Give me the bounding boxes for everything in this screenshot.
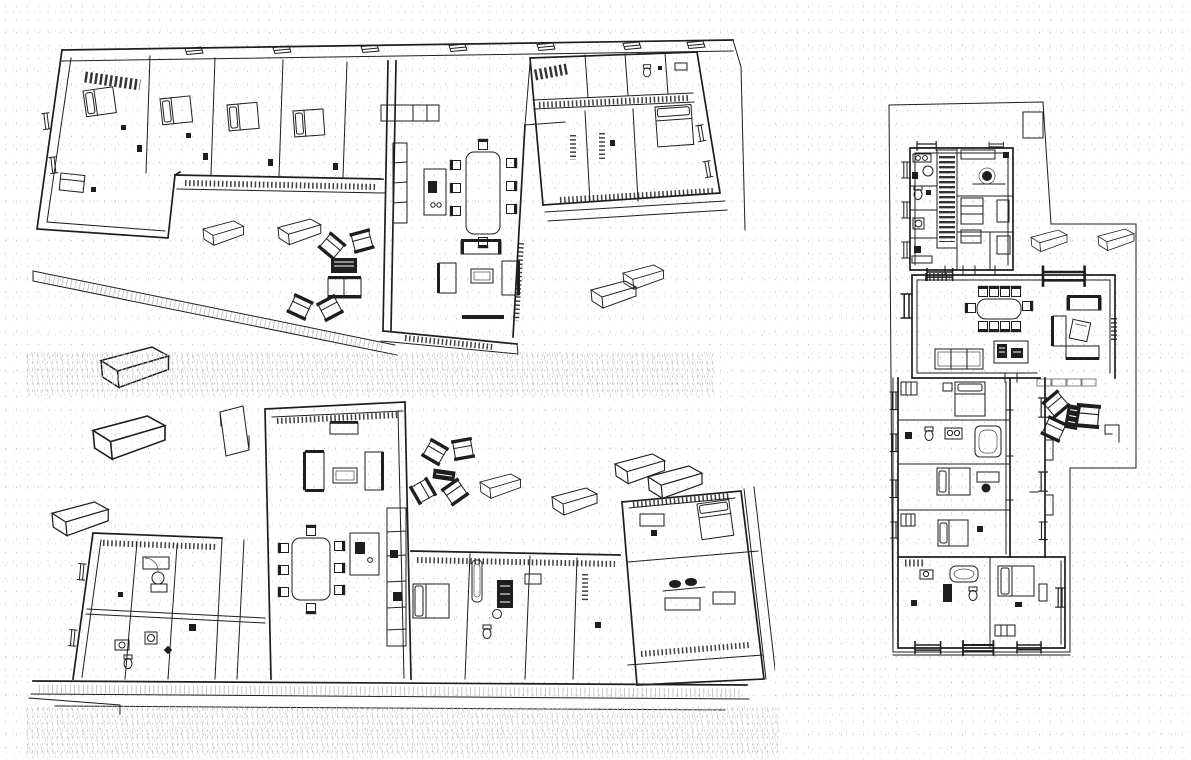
living-block xyxy=(901,267,1115,386)
sofa-corner-group xyxy=(1051,295,1101,360)
axon-upper-figure xyxy=(25,5,770,395)
ground-texture-lower xyxy=(25,706,780,758)
sofa-group xyxy=(303,421,384,492)
kitchen xyxy=(935,341,1028,369)
left-bedroom-block xyxy=(68,533,265,679)
rear-terrace xyxy=(52,406,702,536)
axon-upper-drawing xyxy=(25,5,770,395)
kitchen xyxy=(381,105,446,223)
bedroom-strip xyxy=(890,378,1047,557)
plan-figure xyxy=(865,80,1145,690)
dining-table xyxy=(466,152,500,234)
kitchen xyxy=(350,508,406,646)
right-bedroom-strip xyxy=(411,551,620,679)
plan-drawing xyxy=(865,80,1145,690)
bed-3 xyxy=(938,520,968,546)
bottom-suite xyxy=(893,557,1065,655)
bed-2 xyxy=(937,468,970,495)
master-suite xyxy=(622,487,775,685)
guest-bed xyxy=(655,104,694,146)
bedroom-bed xyxy=(413,584,449,618)
living-block xyxy=(265,402,411,679)
suite-bathroom xyxy=(905,563,978,606)
suite-bed xyxy=(998,566,1034,596)
dining-table xyxy=(292,538,330,600)
sketch-canvas xyxy=(0,0,1191,760)
right-wing xyxy=(530,52,727,221)
bed-1 xyxy=(955,382,985,416)
left-bedroom-wing xyxy=(37,50,385,238)
terrace-table xyxy=(331,258,357,273)
sofa-group xyxy=(437,239,520,319)
side-table xyxy=(1105,425,1119,442)
bed-headboard xyxy=(961,150,995,159)
dining-table xyxy=(977,299,1021,319)
axon-lower-figure xyxy=(25,392,775,757)
bathroom xyxy=(905,426,1001,457)
tv-bench xyxy=(462,315,504,319)
master-bed xyxy=(697,500,734,540)
north-facade xyxy=(62,40,745,230)
upper-block xyxy=(902,142,1013,277)
axon-lower-drawing xyxy=(25,392,775,757)
living-dining-block xyxy=(381,61,565,354)
ground-texture-upper xyxy=(25,352,715,396)
